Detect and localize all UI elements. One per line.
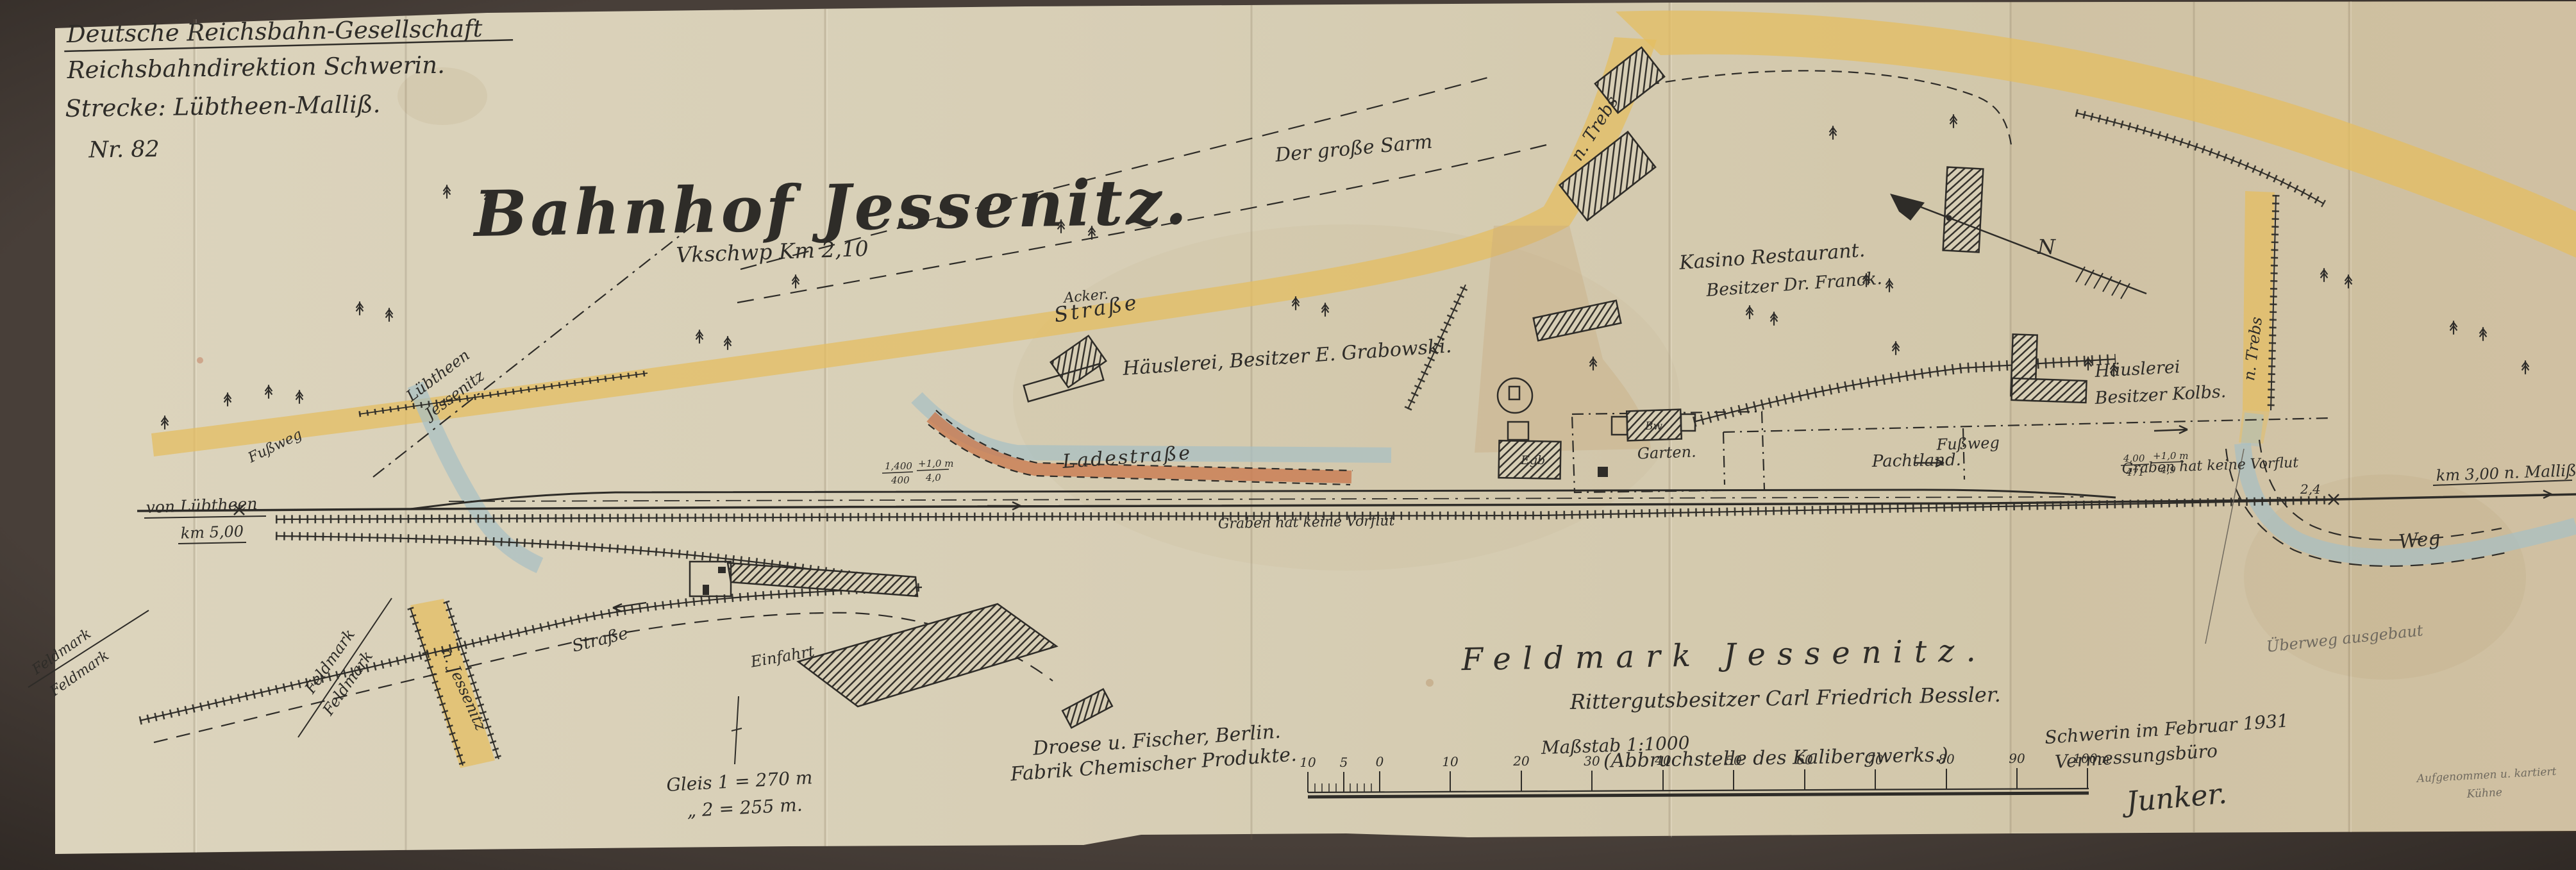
svg-text:4,0: 4,0 [925, 472, 941, 483]
label-n-malliss: n. Malliß [2504, 461, 2576, 482]
label-km5: km 5,00 [180, 523, 244, 542]
station-plan-svg: N Maßstab 1:1000 105 010 2030 4050 6070 [0, 0, 2576, 870]
svg-text:+1,0 m: +1,0 m [918, 458, 953, 469]
building-north-right [1943, 167, 1984, 253]
svg-text:10: 10 [1442, 754, 1459, 769]
gatekeeper-door [703, 585, 709, 595]
crossing-ditch-right [2250, 414, 2254, 446]
svg-text:1,400: 1,400 [885, 460, 912, 472]
route-line: Strecke: Lübtheen-Malliß. [65, 90, 380, 122]
svg-text:400: 400 [891, 474, 910, 486]
label-graben-left: Graben hat keine Vorflut [1218, 513, 1395, 532]
svg-text:30: 30 [1584, 753, 1600, 769]
svg-text:+1,0 m: +1,0 m [2153, 450, 2188, 462]
label-von-luebtheen: von Lübtheen [146, 494, 258, 517]
svg-text:20: 20 [1512, 753, 1530, 769]
svg-text:5: 5 [1340, 755, 1348, 770]
label-bw: Bw [1644, 420, 1662, 433]
svg-text:0: 0 [1376, 754, 1384, 769]
label-fussweg-right: Fußweg [1936, 433, 2000, 453]
label-km3: km 3,00 [2436, 465, 2499, 485]
authority-line2: Reichsbahndirektion Schwerin. [66, 51, 445, 84]
svg-text:4,9: 4,9 [2160, 464, 2176, 476]
svg-text:471: 471 [2125, 467, 2145, 478]
label-egb: Egb [1520, 453, 1545, 467]
label-garten: Garten. [1637, 442, 1696, 462]
label-pachtland: Pachtland. [1871, 451, 1962, 471]
plan-number: Nr. 82 [88, 137, 160, 163]
kolbs-house-main [2011, 378, 2086, 403]
label-weg: Weg [2398, 527, 2442, 554]
small-outbuilding [1598, 467, 1608, 477]
svg-text:4,00: 4,00 [2123, 453, 2145, 464]
svg-text:10: 10 [1300, 755, 1316, 770]
north-label: N [2037, 235, 2056, 259]
label-kuehne: Kühne [2466, 786, 2502, 801]
svg-text:90: 90 [2009, 751, 2025, 766]
label-mark24: 2,4 [2300, 481, 2321, 497]
photographed-map-sheet: N Maßstab 1:1000 105 010 2030 4050 6070 [0, 0, 2576, 870]
gatekeeper-chimney [718, 567, 726, 573]
